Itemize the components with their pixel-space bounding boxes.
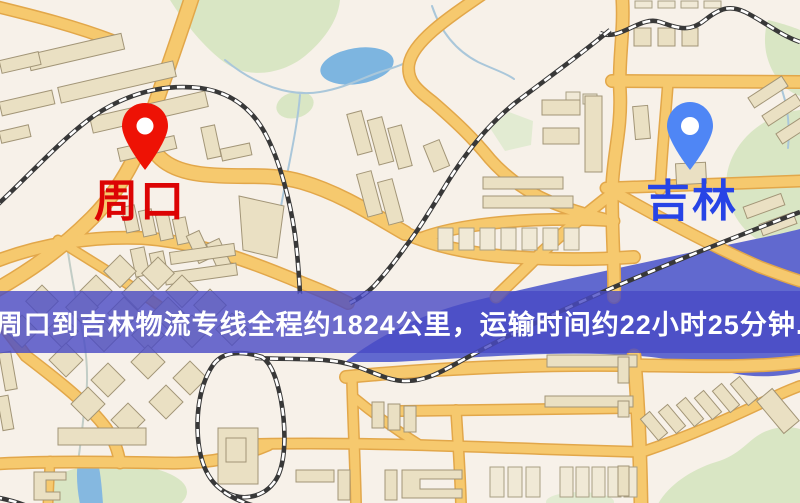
origin-pin-hole	[137, 118, 154, 135]
route-info-text: 周口到吉林物流专线全程约1824公里，运输时间约22小时25分钟.	[0, 303, 800, 342]
map-viewport[interactable]: 周口 吉林 周口到吉林物流专线全程约1824公里，运输时间约22小时25分钟.	[0, 0, 800, 503]
origin-label: 周口	[94, 177, 186, 226]
destination-pin-hole	[681, 117, 699, 135]
map-canvas[interactable]: 周口 吉林	[0, 0, 800, 503]
destination-label: 吉林	[646, 177, 738, 226]
route-info-banner: 周口到吉林物流专线全程约1824公里，运输时间约22小时25分钟.	[0, 291, 800, 353]
